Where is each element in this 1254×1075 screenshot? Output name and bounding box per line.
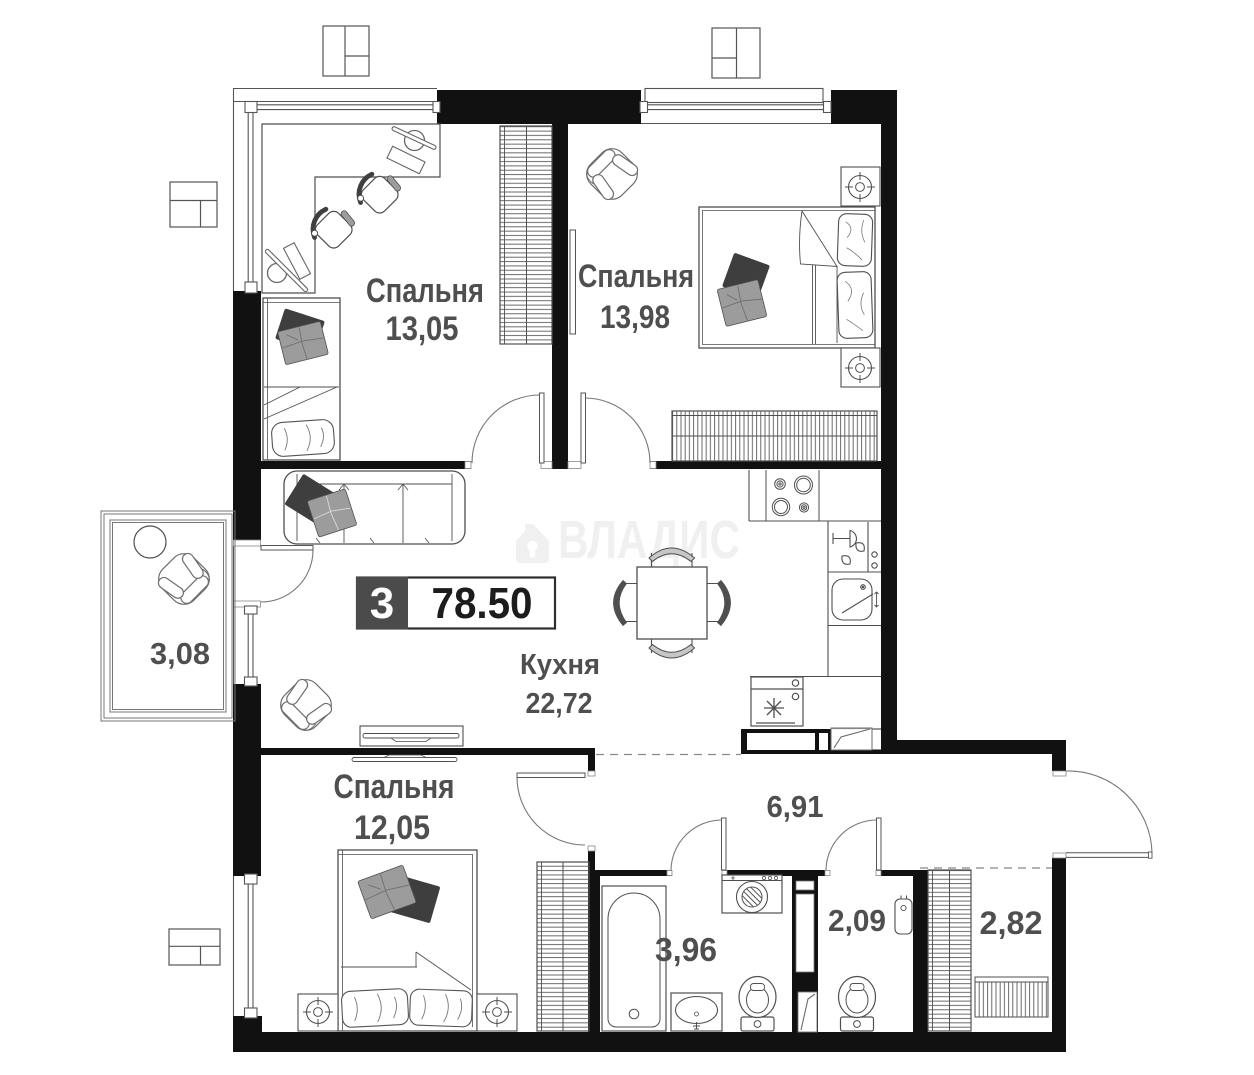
svg-text:Спальня: Спальня (366, 272, 484, 310)
svg-text:22,72: 22,72 (526, 688, 593, 720)
svg-text:12,05: 12,05 (354, 809, 430, 847)
svg-text:2,82: 2,82 (980, 905, 1043, 941)
svg-text:Кухня: Кухня (520, 649, 600, 681)
svg-text:13,98: 13,98 (600, 299, 670, 335)
svg-text:78.50: 78.50 (432, 579, 533, 628)
svg-text:3,96: 3,96 (655, 931, 717, 968)
svg-text:2,09: 2,09 (828, 903, 886, 938)
svg-text:3: 3 (370, 579, 394, 628)
svg-text:Спальня: Спальня (578, 258, 694, 294)
svg-text:6,91: 6,91 (767, 789, 824, 824)
svg-text:13,05: 13,05 (386, 310, 459, 348)
svg-text:Спальня: Спальня (334, 768, 455, 806)
svg-text:3,08: 3,08 (150, 636, 210, 671)
svg-text:ВЛАДИС: ВЛАДИС (558, 510, 740, 570)
